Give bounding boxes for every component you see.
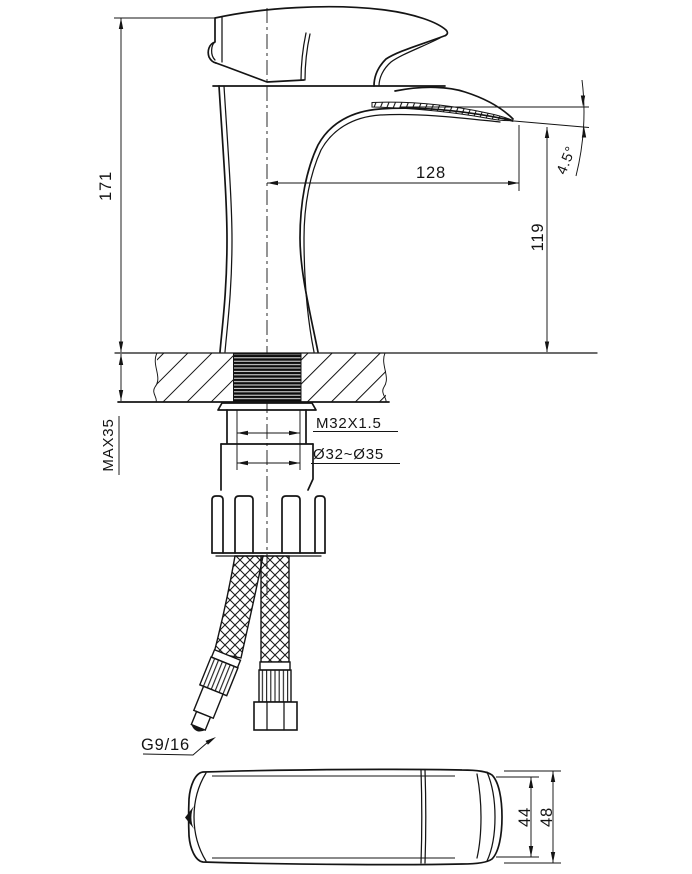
body-right-spout-underside (300, 108, 513, 352)
body-right-inner (304, 115, 500, 352)
hose-thread-dim-label: G9/16 (141, 736, 190, 754)
waterfall-outlet-hatch (372, 102, 513, 120)
spout-reach-dim-label: 128 (416, 164, 446, 182)
shank-thread-dim-label: M32X1.5 (316, 415, 382, 432)
countertop-hatch-right (301, 353, 386, 402)
body-left-outer (219, 86, 227, 352)
castellated-mounting-nut (212, 496, 325, 556)
mounting-hardware (212, 403, 325, 556)
handle-lever-underside-inner (379, 38, 440, 86)
max-thickness-dim-label: MAX35 (100, 418, 117, 471)
threaded-shank (234, 354, 302, 402)
cartridge-cap-rear-curve (301, 33, 310, 80)
top-view-inner-width-label: 44 (516, 807, 534, 827)
body-left-inner (224, 86, 232, 352)
angle-ref-sloped (514, 121, 589, 128)
faucet-handle (208, 7, 447, 86)
countertop-hatch-left (157, 353, 234, 402)
front-view: 171 MAX35 128 119 (97, 7, 597, 755)
faucet-body (213, 86, 513, 352)
top-view-seam (421, 770, 426, 863)
angled-hose-braid (214, 556, 263, 658)
mounting-hole-dim-label: Ø32~Ø35 (313, 446, 384, 463)
top-view-outer-width-label: 48 (538, 807, 556, 827)
top-view-spout-arc-outer (487, 772, 495, 861)
top-view-nose-inner (194, 773, 206, 861)
ext-lines-shank (237, 410, 300, 470)
outlet-angle-dim-label: 4.5° (554, 144, 580, 177)
supply-hoses (183, 556, 297, 736)
handle-button (212, 42, 215, 60)
outlet-height-dim-label: 119 (529, 223, 547, 252)
angled-hose-fitting (183, 650, 241, 737)
handle-lever-underside (374, 36, 446, 87)
countertop-section (115, 353, 597, 402)
handle-base-bottom (216, 63, 304, 82)
technical-drawing-page: 171 MAX35 128 119 (0, 0, 692, 874)
top-view-spout-arc-inner (477, 774, 481, 858)
g916-arrow (206, 737, 217, 745)
handle-lever-top-edge (215, 7, 447, 36)
straight-hose-braid (261, 556, 289, 662)
top-view: 44 48 (185, 769, 561, 864)
angle-arc (576, 80, 584, 176)
faucet-dimension-drawing: 171 MAX35 128 119 (0, 0, 692, 874)
top-view-outline (189, 769, 502, 864)
straight-hose-nut (254, 702, 297, 730)
straight-hose-collar (259, 670, 291, 702)
straight-hose-ferrule (260, 662, 290, 670)
overall-height-dim-label: 171 (97, 171, 115, 201)
dimensions-top-view: 44 48 (496, 771, 561, 863)
